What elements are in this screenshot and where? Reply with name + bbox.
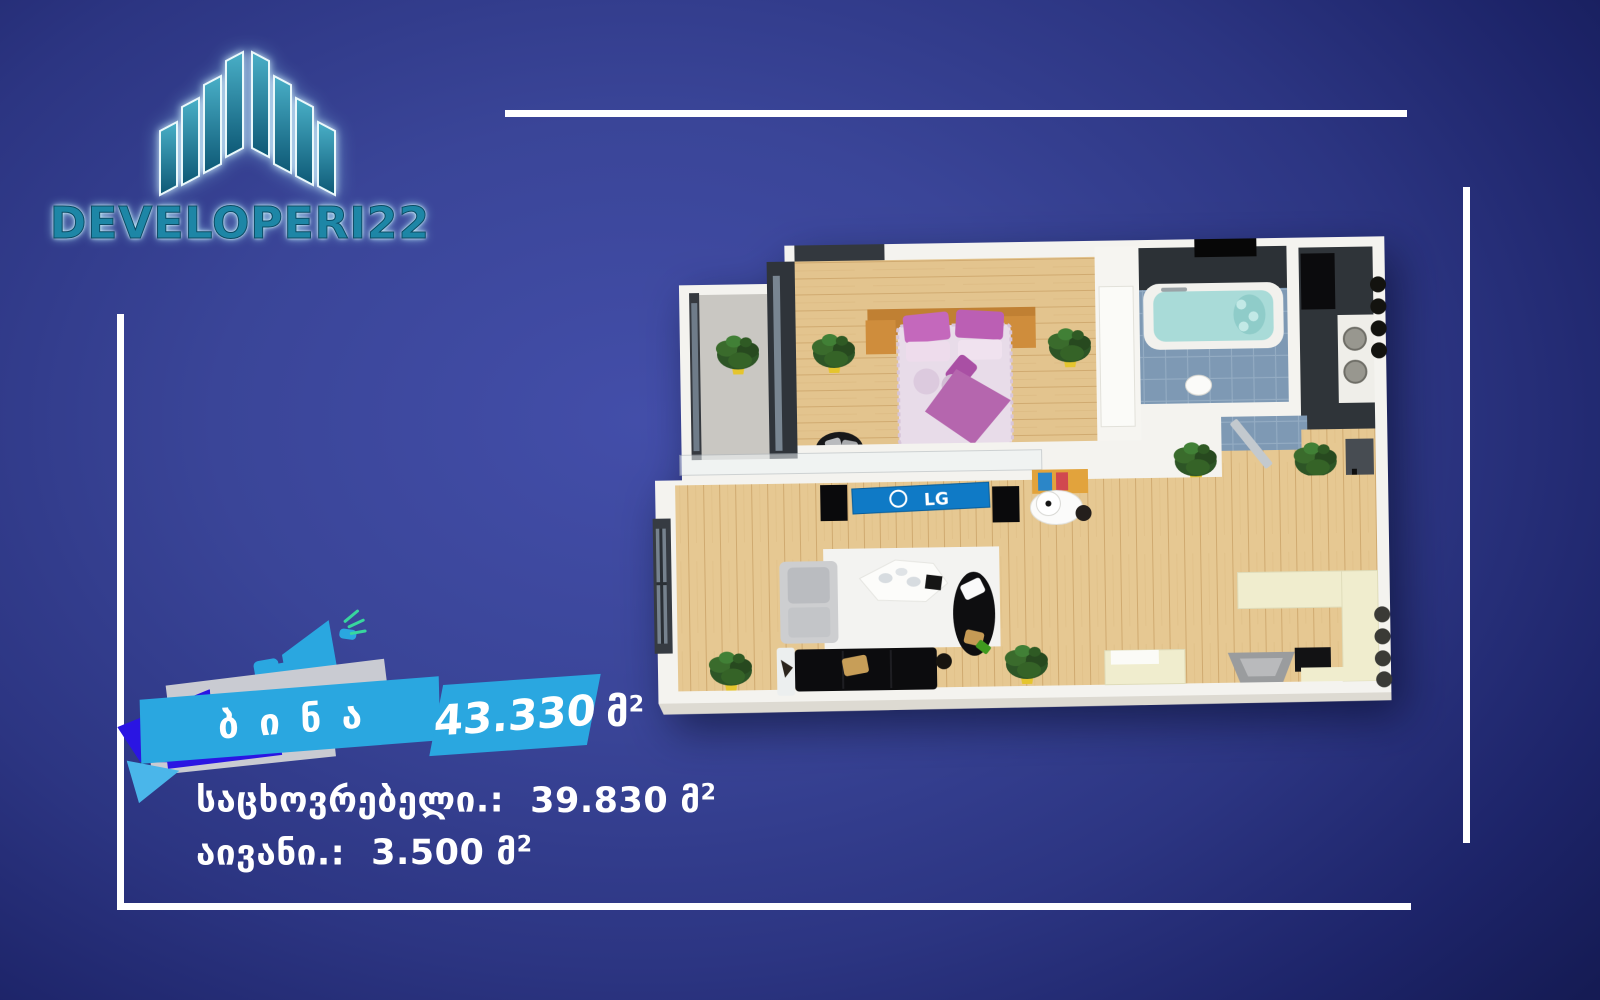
logo-text: DEVELOPERI22: [40, 198, 440, 249]
bedroom: [794, 240, 1141, 468]
total-area-value: 43.330: [433, 685, 597, 746]
frame-line-right: [1463, 187, 1470, 843]
tv-brand-text: LG: [924, 489, 950, 510]
frame-line-bottom: [117, 903, 1411, 910]
speaker: [992, 486, 1020, 522]
floorplan-image: LG: [636, 222, 1408, 734]
speaker: [820, 485, 848, 521]
frame-line-left: [117, 314, 124, 910]
toilet: [1185, 375, 1211, 395]
total-area-unit: მ2: [606, 690, 644, 736]
balcony-area-value: 3.500: [371, 833, 484, 873]
apartment-title: ბინა: [197, 691, 383, 749]
armchair: [779, 561, 838, 644]
bathtub: [1143, 282, 1284, 350]
living-area-row: საცხოვრებელი.:39.830მ2: [196, 780, 716, 821]
living-area-label: საცხოვრებელი.:: [196, 781, 504, 821]
frame-line-top: [505, 110, 1407, 117]
sofa: [777, 645, 938, 696]
balcony-area-row: აივანი.:3.500მ2: [196, 833, 716, 874]
buildings-logo-icon: [140, 36, 355, 201]
balcony-area-label: აივანი.:: [196, 833, 345, 873]
bathroom: [1138, 238, 1289, 418]
total-area-chip: 43.330: [429, 674, 600, 756]
living-area-value: 39.830: [530, 781, 668, 821]
area-details: საცხოვრებელი.:39.830მ2 აივანი.:3.500მ2: [196, 780, 716, 885]
flyer-background: DEVELOPERI22: [0, 0, 1600, 1000]
